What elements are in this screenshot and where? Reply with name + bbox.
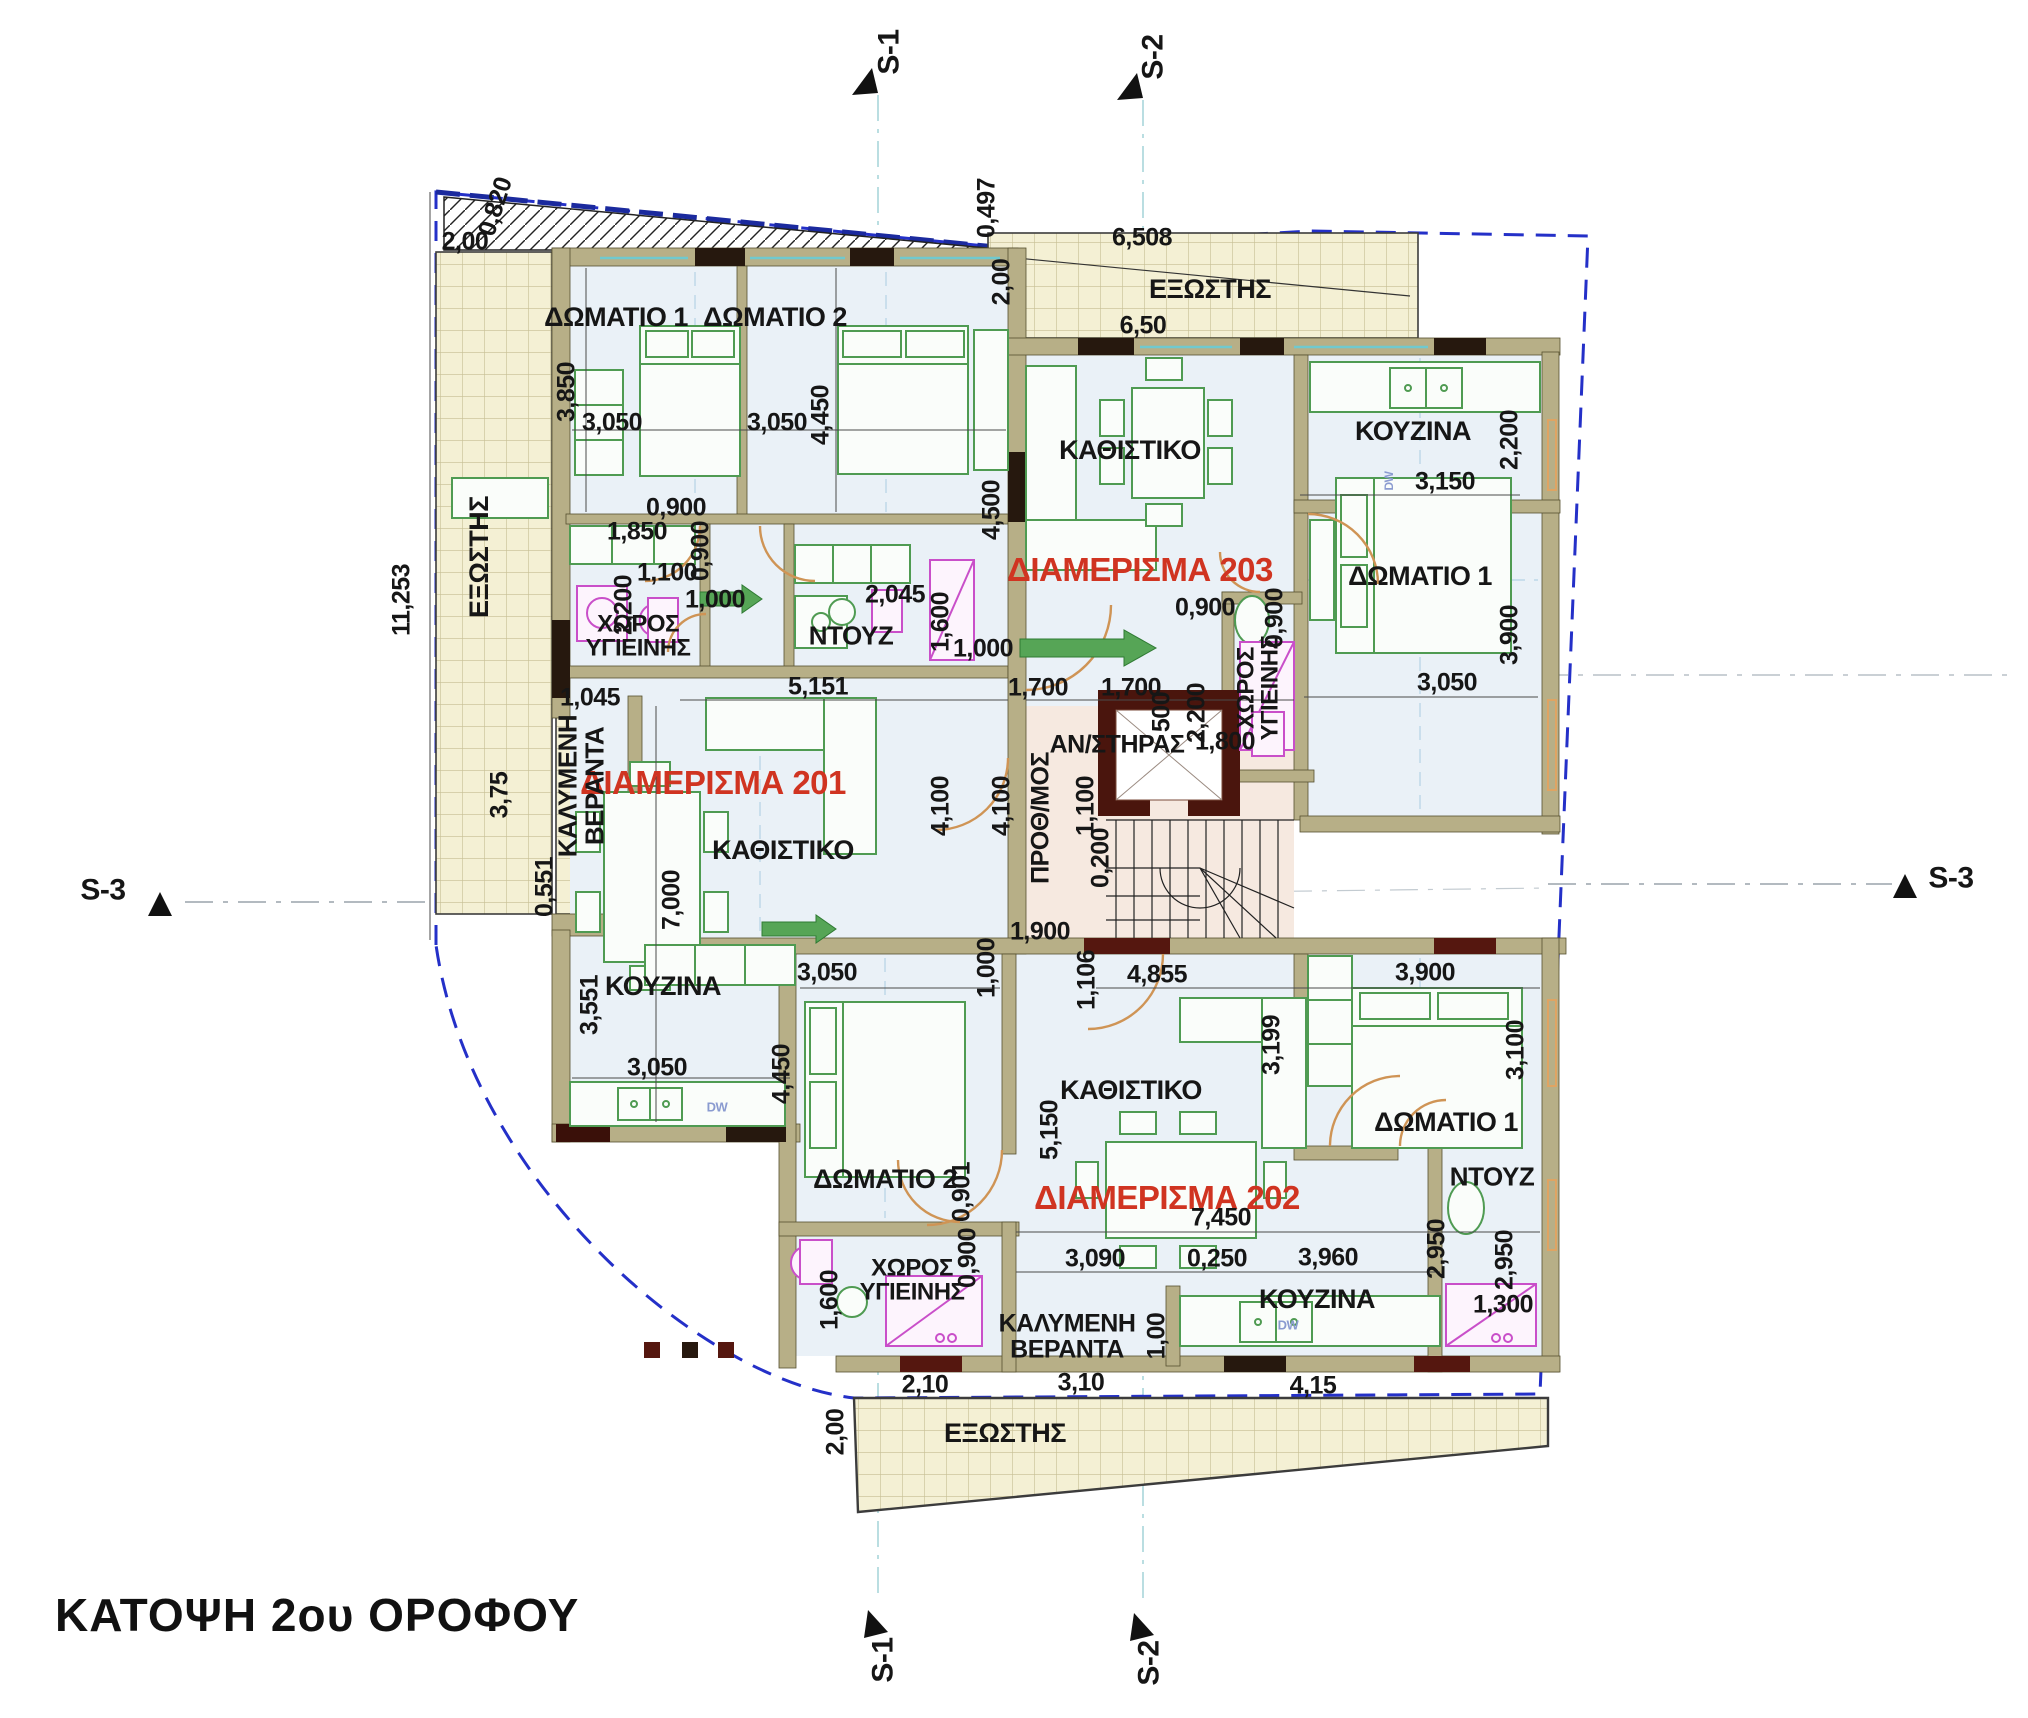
washbasin bbox=[829, 599, 855, 625]
triangle-icon bbox=[852, 68, 878, 95]
sofa bbox=[824, 698, 876, 854]
balcony-top bbox=[988, 233, 1418, 338]
sofa bbox=[1026, 520, 1156, 570]
elevator-shaft bbox=[1098, 690, 1240, 816]
toilet bbox=[872, 590, 902, 632]
wardrobe bbox=[1310, 520, 1334, 620]
toilet bbox=[1252, 712, 1284, 756]
balcony-bottom bbox=[854, 1398, 1548, 1512]
washbasin bbox=[1235, 596, 1269, 644]
page-title: ΚΑΤΟΨΗ 2ου ΟΡΟΦΟΥ bbox=[55, 1588, 579, 1642]
hatched-overhang bbox=[444, 197, 1008, 250]
planter bbox=[452, 478, 548, 518]
wardrobe bbox=[575, 370, 623, 475]
triangle-icon bbox=[864, 1610, 888, 1638]
floor-plan-drawing bbox=[0, 0, 2028, 1718]
sofa bbox=[1262, 998, 1306, 1148]
wardrobe bbox=[974, 330, 1008, 470]
balcony-left bbox=[436, 252, 552, 914]
triangle-icon bbox=[1130, 1613, 1154, 1641]
floor-plan-sheet: S-1S-2S-3S-3S-1S-2ΔΙΑΜΕΡΙΣΜΑ 201ΔΙΑΜΕΡΙΣ… bbox=[0, 0, 2028, 1718]
dining-table bbox=[1106, 1142, 1256, 1238]
washbasin bbox=[1448, 1182, 1484, 1234]
dining-table bbox=[1132, 388, 1204, 498]
vanity bbox=[795, 545, 910, 583]
vanity bbox=[570, 526, 695, 564]
wardrobe bbox=[1308, 956, 1352, 1086]
kitchen-counter bbox=[645, 945, 795, 985]
washbasin bbox=[837, 1287, 867, 1317]
dining-table bbox=[604, 792, 700, 962]
triangle-icon bbox=[148, 892, 172, 916]
triangle-icon bbox=[1117, 73, 1143, 100]
triangle-icon bbox=[1893, 874, 1917, 898]
